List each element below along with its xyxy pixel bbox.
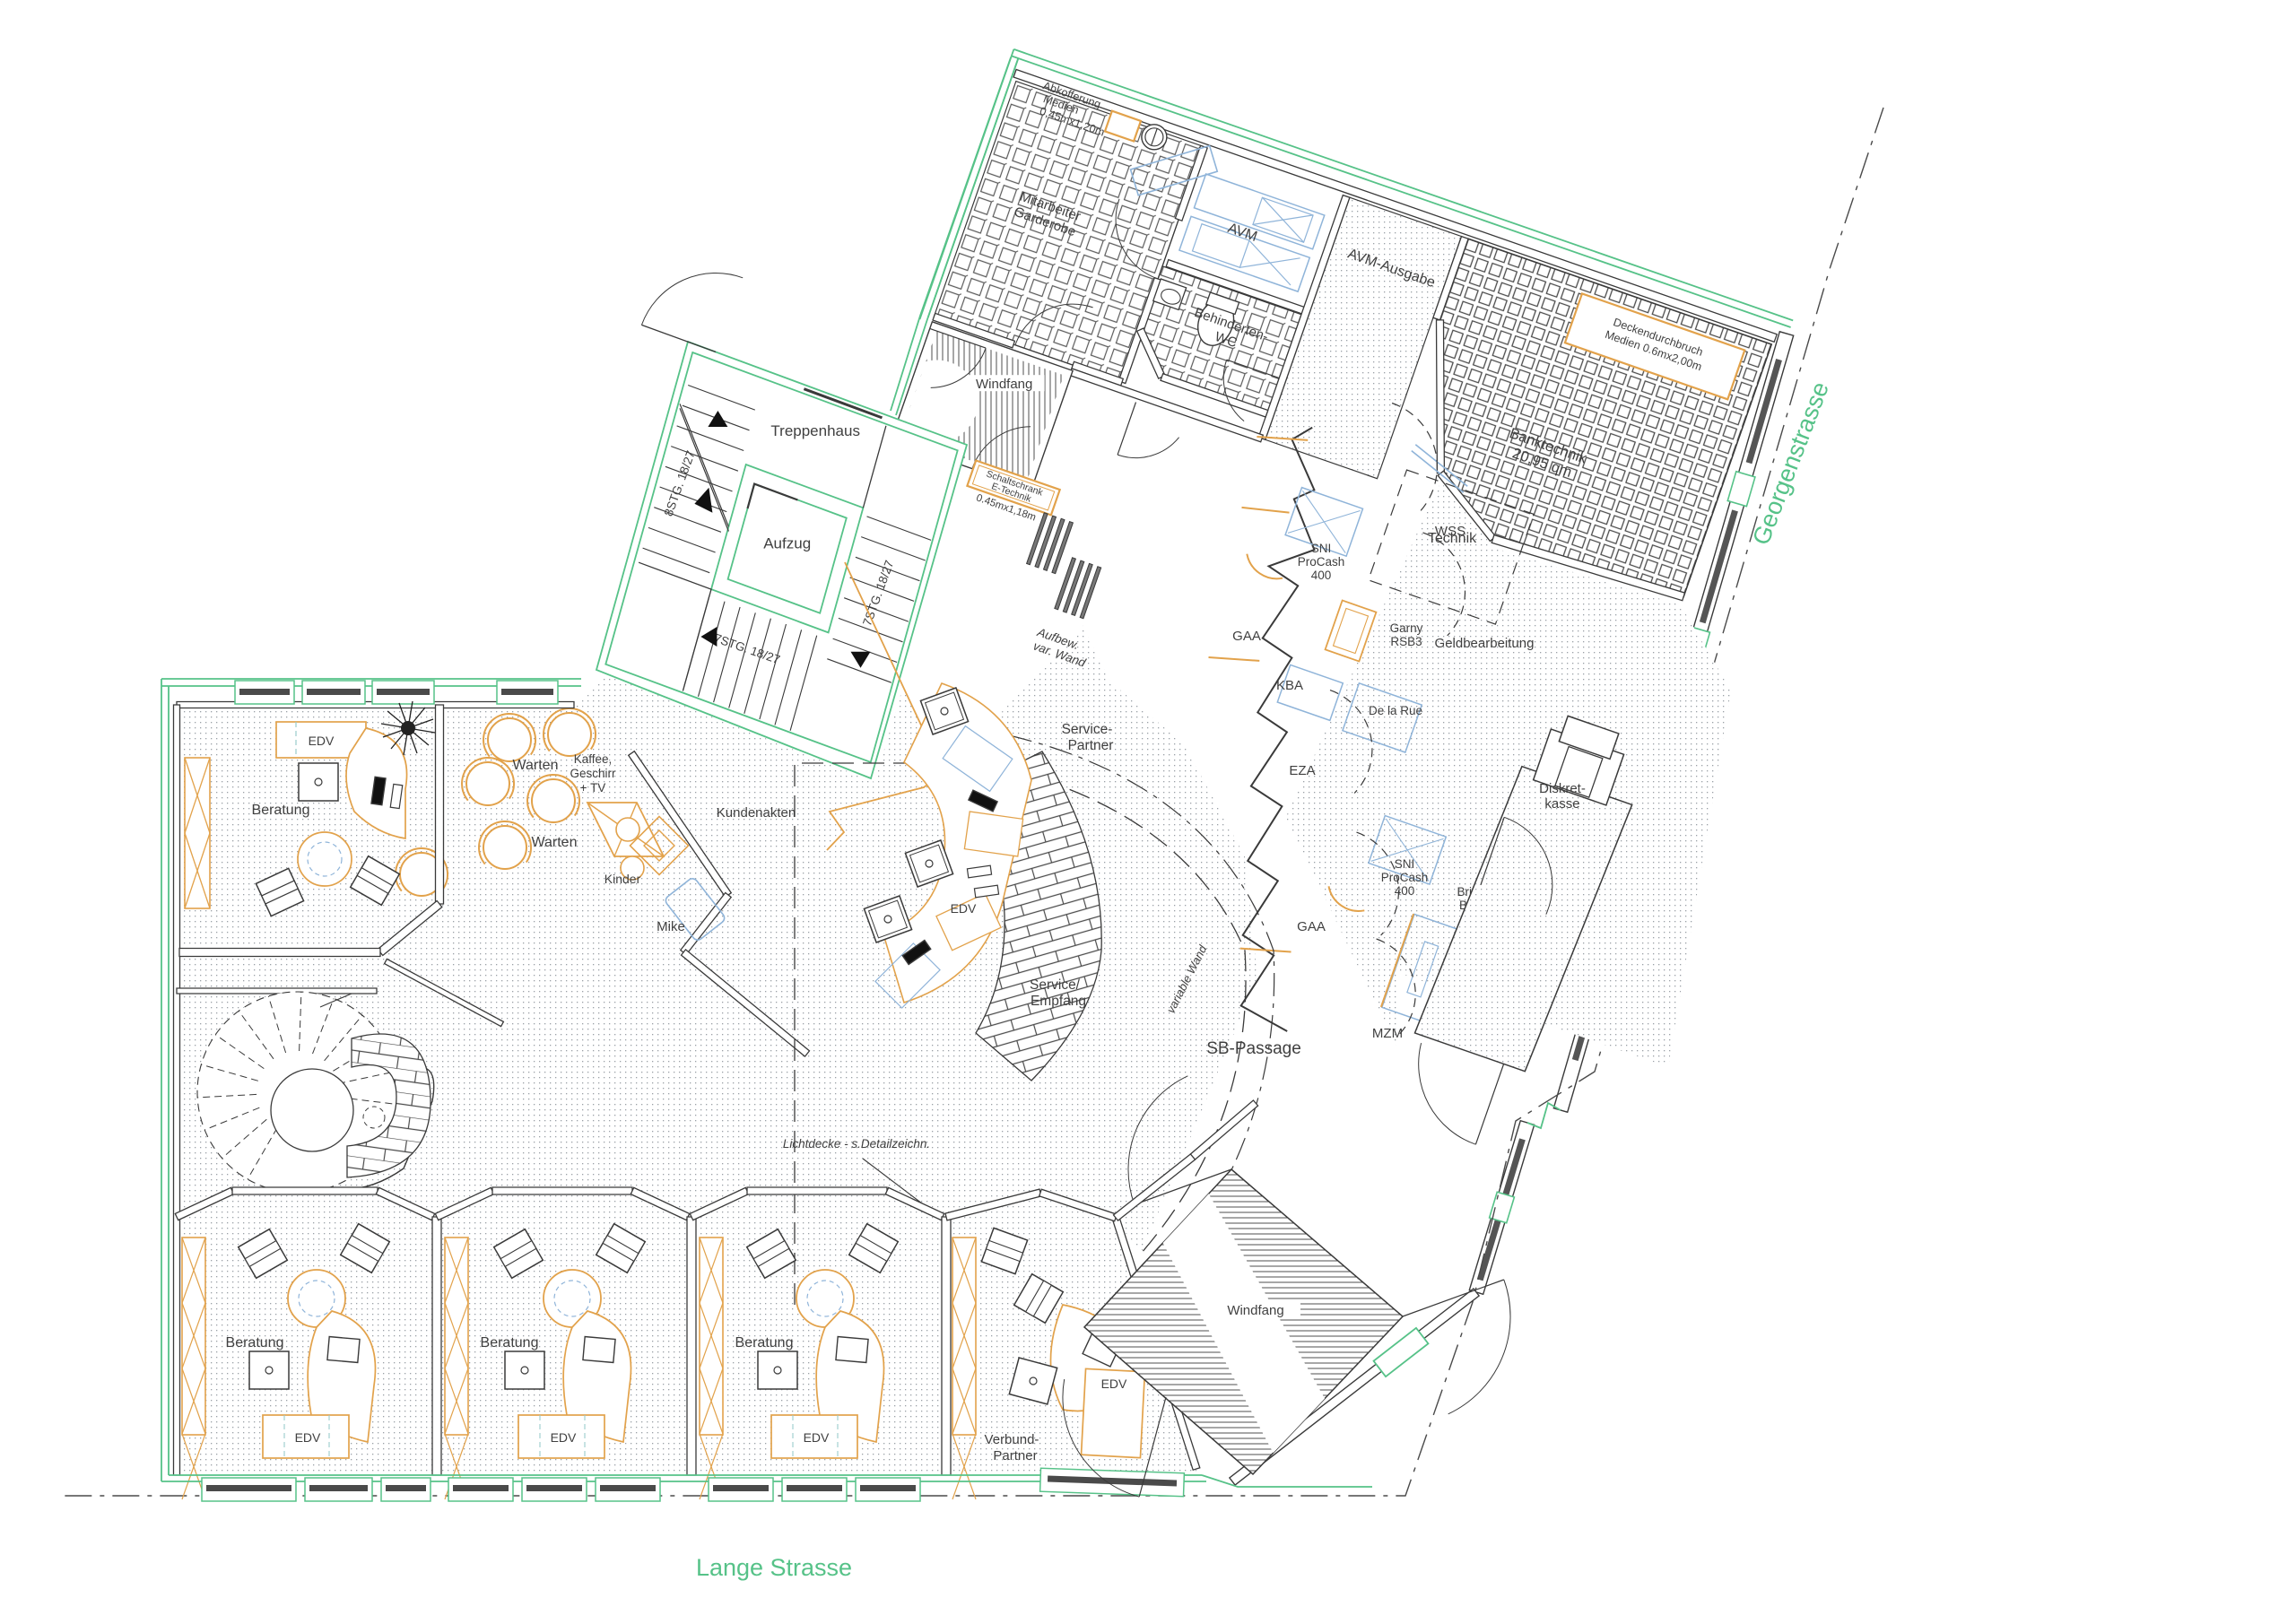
svg-text:+ TV: + TV [580,781,606,795]
svg-text:Lange Strasse: Lange Strasse [696,1554,852,1581]
svg-text:EDV: EDV [309,734,335,748]
svg-text:GAA: GAA [1232,629,1261,644]
svg-text:Mike: Mike [657,919,685,934]
svg-text:kasse: kasse [1544,796,1579,812]
svg-text:Geldbearbeitung: Geldbearbeitung [1435,636,1535,651]
svg-text:SB-Passage: SB-Passage [1206,1039,1301,1058]
svg-text:RSB3: RSB3 [1390,635,1422,648]
svg-text:GAA: GAA [1297,919,1326,934]
svg-text:Partner: Partner [993,1448,1037,1463]
svg-text:SNI: SNI [1395,857,1415,871]
svg-text:KBA: KBA [1276,678,1303,693]
svg-text:SNI: SNI [1311,542,1332,555]
svg-text:Treppenhaus: Treppenhaus [770,422,860,439]
svg-text:Windfang: Windfang [1227,1303,1283,1318]
svg-text:Service/: Service/ [1030,977,1081,993]
svg-text:Beratung: Beratung [226,1335,284,1350]
svg-text:De la Rue: De la Rue [1369,704,1422,717]
svg-text:Kaffee,: Kaffee, [574,752,613,766]
svg-text:EDV: EDV [1101,1376,1127,1391]
svg-text:EDV: EDV [295,1430,321,1445]
svg-text:Aufzug: Aufzug [763,535,811,552]
svg-text:Geschirr: Geschirr [570,767,616,780]
svg-text:ProCash: ProCash [1298,555,1345,569]
svg-text:Windfang: Windfang [976,377,1032,392]
svg-text:EZA: EZA [1289,763,1315,778]
svg-text:Diskret-: Diskret- [1539,781,1586,796]
svg-text:400: 400 [1395,884,1415,898]
svg-text:EDV: EDV [551,1430,577,1445]
svg-text:Beratung: Beratung [735,1335,794,1350]
svg-text:Verbund-: Verbund- [985,1432,1039,1447]
svg-text:Empfang: Empfang [1031,994,1086,1009]
svg-text:EDV: EDV [804,1430,830,1445]
svg-text:Beratung: Beratung [481,1335,539,1350]
svg-text:Warten: Warten [532,835,578,850]
svg-text:ProCash: ProCash [1381,871,1429,884]
svg-text:Service-: Service- [1062,722,1113,737]
svg-text:Lichtdecke - s.Detailzeichn.: Lichtdecke - s.Detailzeichn. [783,1137,930,1151]
svg-text:Garny: Garny [1390,621,1423,635]
svg-text:Beratung: Beratung [252,803,310,818]
svg-text:Kinder: Kinder [604,872,641,886]
svg-text:WSS: WSS [1435,524,1465,539]
svg-text:Warten: Warten [513,758,559,773]
svg-text:Partner: Partner [1068,738,1114,753]
svg-text:Kundenakten: Kundenakten [717,805,796,821]
svg-text:400: 400 [1311,569,1332,582]
svg-text:MZM: MZM [1372,1026,1403,1041]
svg-text:EDV: EDV [951,901,977,916]
